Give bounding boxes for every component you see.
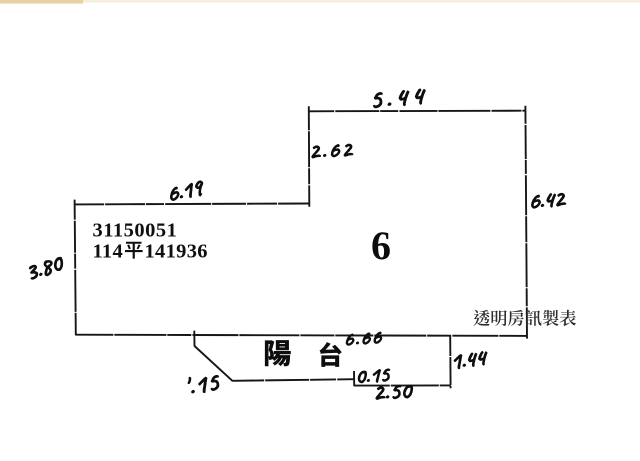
svg-text:114: 114 [93,241,124,263]
svg-text:6: 6 [371,223,391,268]
svg-text:31150051: 31150051 [93,220,178,242]
svg-text:141936: 141936 [145,241,208,263]
